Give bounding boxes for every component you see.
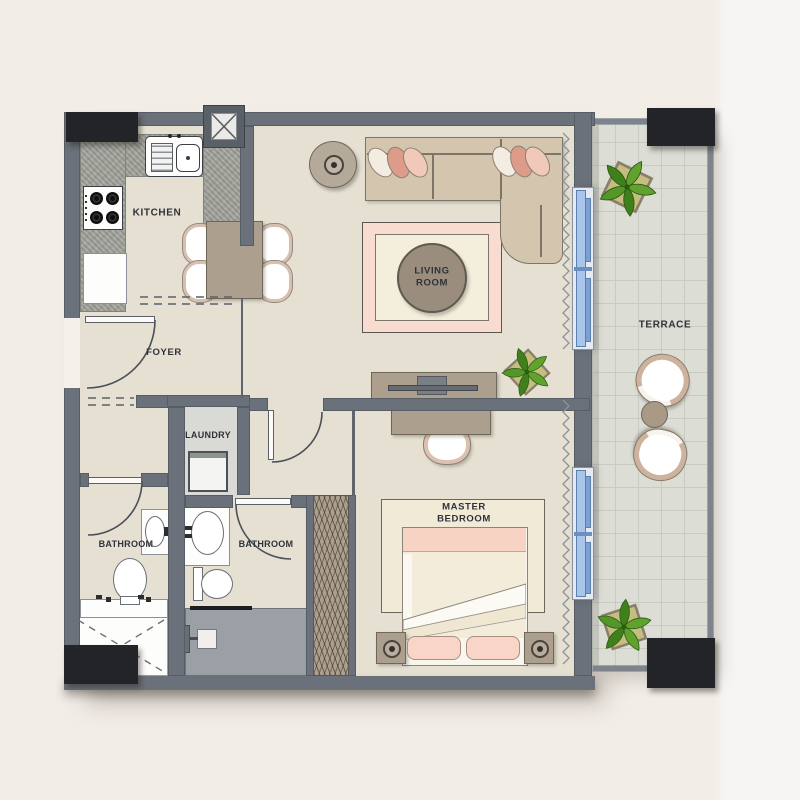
room-label-foyer: FOYER	[146, 347, 182, 359]
terrace-table	[641, 401, 668, 428]
sink-drain-icon	[186, 156, 190, 160]
bed-pillow	[466, 636, 520, 660]
nightstand-lamp-icon	[531, 640, 549, 658]
sink-drainboard	[151, 143, 173, 172]
stove-knobs	[85, 195, 87, 221]
wall-left	[64, 112, 80, 690]
room-label-bathroom-master: BATHROOM	[239, 539, 294, 551]
table-lamp-icon	[324, 155, 344, 175]
living-room-window	[572, 187, 594, 350]
wall-laundry-right	[237, 407, 250, 495]
window-divider	[574, 267, 592, 271]
partition-vestibule-bedroom	[352, 411, 355, 496]
stove-burner-icon	[106, 211, 119, 224]
sink-basin	[191, 511, 224, 555]
toilet	[113, 558, 147, 601]
shower-arm	[190, 637, 198, 640]
stove-burner-icon	[90, 211, 103, 224]
window-sash	[585, 198, 591, 262]
faucet-icon	[184, 526, 192, 530]
duct-x-icon	[211, 113, 237, 140]
wardrobe	[313, 495, 349, 676]
duct-shaft	[203, 105, 245, 148]
tv-screen	[388, 385, 478, 391]
nightstand-lamp-icon	[383, 640, 401, 658]
sofa-seam	[540, 205, 542, 257]
column	[66, 112, 138, 142]
desk	[391, 408, 491, 435]
fridge	[83, 253, 127, 304]
bedroom-door-leaf	[268, 410, 274, 460]
column	[64, 645, 138, 684]
wall-spine-right	[323, 398, 590, 411]
bed-pillow	[407, 636, 461, 660]
toilet-tap-icon	[106, 597, 111, 602]
column	[647, 108, 715, 146]
bathroom2-door-leaf	[235, 498, 291, 505]
wall-foyer-stub	[136, 395, 168, 408]
entry-door-leaf	[85, 316, 155, 323]
stove-burner-icon	[106, 192, 119, 205]
bathroom1-door-leaf	[88, 477, 142, 484]
bedroom-window	[572, 467, 594, 600]
stove	[83, 186, 123, 230]
wall-bottom	[64, 676, 595, 690]
wall-wardrobe-right	[348, 495, 356, 676]
window-sash	[585, 542, 591, 594]
sink-faucet-icon	[168, 134, 172, 138]
window-sash	[585, 278, 591, 342]
vanity-sink	[184, 503, 230, 566]
toilet	[201, 569, 233, 599]
wall-laundry-top	[163, 395, 250, 407]
kitchen-sink	[145, 136, 203, 177]
shower-curb	[190, 606, 252, 610]
dining-table	[206, 221, 263, 299]
room-label-laundry: LAUNDRY	[185, 430, 231, 442]
entry-opening	[64, 318, 80, 388]
terrace-wall-right	[707, 118, 714, 672]
washer-panel	[190, 453, 226, 458]
room-label-kitchen: KITCHEN	[133, 207, 182, 220]
wall-top	[64, 112, 595, 126]
window-sash	[585, 476, 591, 528]
wall-bath1-top-b	[141, 473, 168, 487]
partition-foyer-living	[241, 298, 243, 398]
window-divider	[574, 532, 592, 536]
tub-tap-icon	[96, 595, 102, 599]
sofa-seam	[432, 154, 434, 199]
sofa-chaise	[500, 198, 563, 264]
toilet-tank	[120, 596, 140, 605]
wall-bath2-top-a	[185, 495, 233, 508]
column	[647, 638, 715, 688]
floor-plan: KITCHEN FOYER LAUNDRY BATHROOM BATHROOM …	[0, 0, 800, 800]
room-label-terrace: TERRACE	[639, 319, 692, 332]
room-label-living-room: LIVING ROOM	[406, 266, 458, 291]
washing-machine	[188, 451, 228, 492]
room-label-master-bedroom: MASTER BEDROOM	[429, 502, 499, 527]
wall-bath-divider	[168, 407, 185, 676]
shower-head	[197, 629, 217, 649]
stove-burner-icon	[90, 192, 103, 205]
room-label-bathroom-small: BATHROOM	[99, 539, 154, 551]
